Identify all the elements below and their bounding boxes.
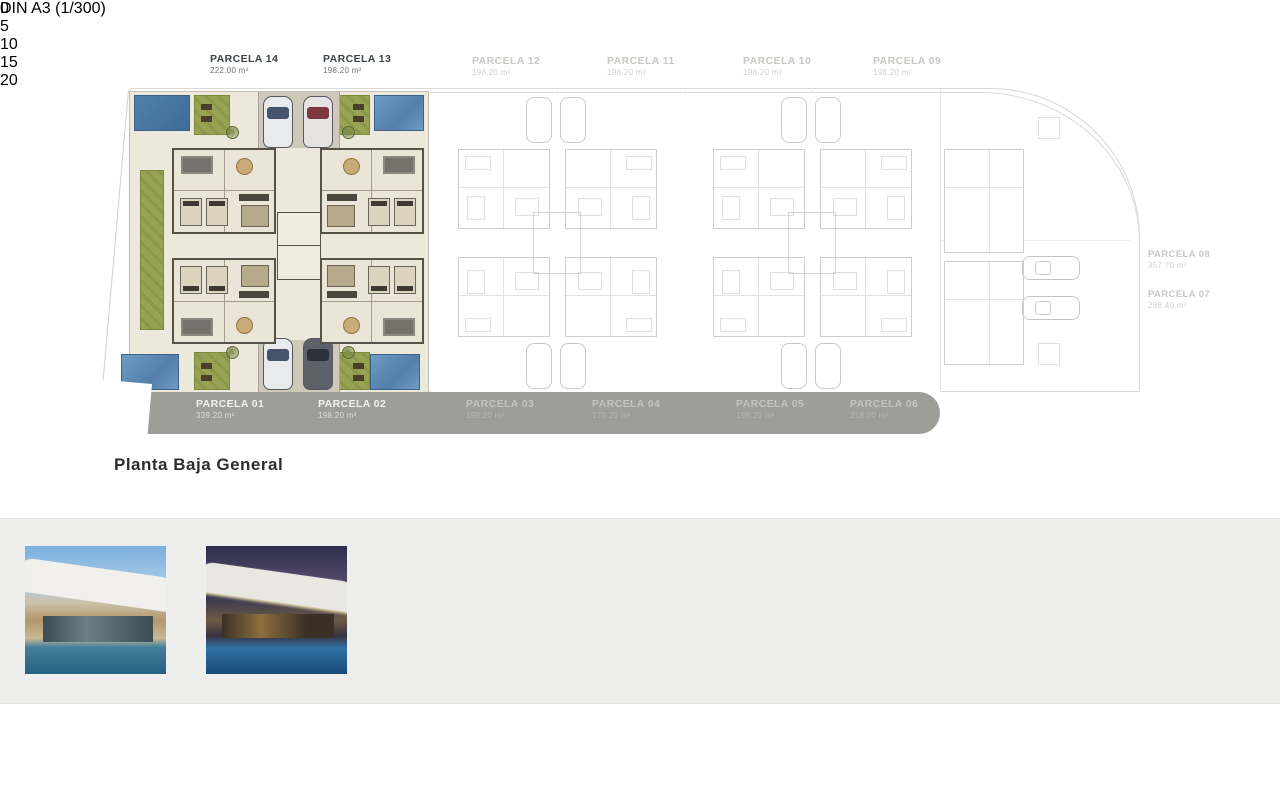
parcel-label-12: PARCELA 12198.20 m² [472, 55, 540, 78]
parcel-label-08: PARCELA 08357.70 m² [1148, 249, 1210, 271]
photo-interior-bedroom[interactable] [930, 546, 1071, 674]
car-icon [303, 96, 333, 148]
garden-patch [194, 95, 230, 135]
parcel-label-03: PARCELA 03198.20 m² [466, 398, 534, 421]
tree-icon [342, 126, 355, 139]
tree-icon [342, 346, 355, 359]
scale-tick-10: 10 [0, 36, 1280, 54]
garden-left-strip [140, 170, 164, 330]
car-icon [1022, 296, 1080, 320]
ghost-plan-block-right [940, 92, 1140, 392]
parcel-label-05: PARCELA 05198.20 m² [736, 398, 804, 421]
ghost-plan-block-b [685, 92, 940, 392]
car-icon [303, 338, 333, 390]
central-core [277, 212, 321, 280]
tree-icon [226, 346, 239, 359]
pool-bottom-right [370, 354, 420, 390]
car-icon [1022, 256, 1080, 280]
road-band-left-cut [86, 379, 152, 458]
photo-interior-bathroom[interactable] [1111, 546, 1252, 674]
parcel-label-09: PARCELA 09198.20 m² [873, 55, 941, 78]
photo-exterior-villa-day[interactable] [25, 546, 166, 674]
tree-icon [226, 126, 239, 139]
site-plan-sheet: PARCELA 14222.00 m² PARCELA 13198.20 m² … [0, 0, 1280, 800]
parcel-label-04: PARCELA 04179.20 m² [592, 398, 660, 421]
photo-interior-living-terrace[interactable] [387, 546, 528, 674]
garden-patch [336, 352, 370, 390]
scale-tick-5: 5 [0, 18, 1280, 36]
unit-parcela-14 [172, 148, 276, 234]
parcel-label-06: PARCELA 06218.00 m² [850, 398, 918, 421]
pool-top-left [134, 95, 190, 131]
scale-tick-0: 0 [0, 0, 1280, 18]
photo-exterior-villa-dusk[interactable] [206, 546, 347, 674]
ghost-plan-block-a [430, 92, 685, 392]
parcel-label-13: PARCELA 13198.20 m² [323, 53, 391, 76]
car-icon [263, 338, 293, 390]
photo-gallery [0, 518, 1280, 704]
unit-parcela-01 [172, 258, 276, 344]
sheet-scale-label: DIN A3 (1/300) [0, 0, 106, 18]
photo-interior-living-sofa[interactable] [568, 546, 709, 674]
parcel-label-07: PARCELA 07268.40 m² [1148, 289, 1210, 311]
parcel-label-02: PARCELA 02198.20 m² [318, 398, 386, 421]
parcel-label-14: PARCELA 14222.00 m² [210, 53, 278, 76]
parcel-label-11: PARCELA 11198.20 m² [607, 55, 675, 78]
car-icon [263, 96, 293, 148]
unit-parcela-02 [320, 258, 424, 344]
parcel-label-10: PARCELA 10198.20 m² [743, 55, 811, 78]
plan-title: Planta Baja General [114, 455, 283, 475]
parcel-label-01: PARCELA 01339.20 m² [196, 398, 264, 421]
garden-patch [194, 352, 230, 390]
photo-interior-kitchen-dining[interactable] [749, 546, 890, 674]
unit-parcela-13 [320, 148, 424, 234]
pool-top-right [374, 95, 424, 131]
